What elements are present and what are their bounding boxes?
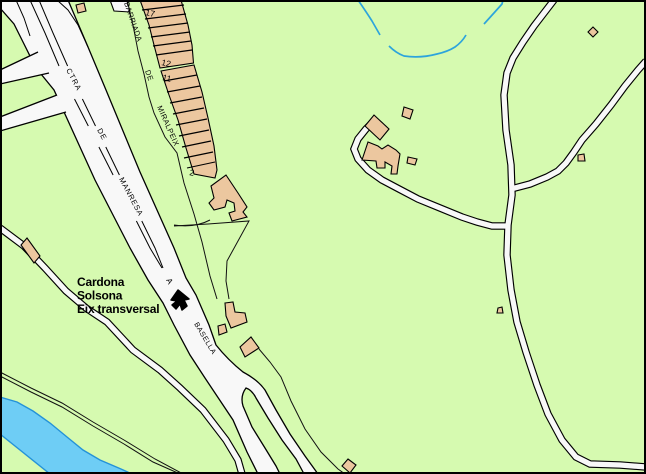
- svg-text:Eix transversal: Eix transversal: [77, 302, 159, 316]
- svg-text:Solsona: Solsona: [77, 289, 123, 303]
- svg-text:Cardona: Cardona: [77, 275, 125, 289]
